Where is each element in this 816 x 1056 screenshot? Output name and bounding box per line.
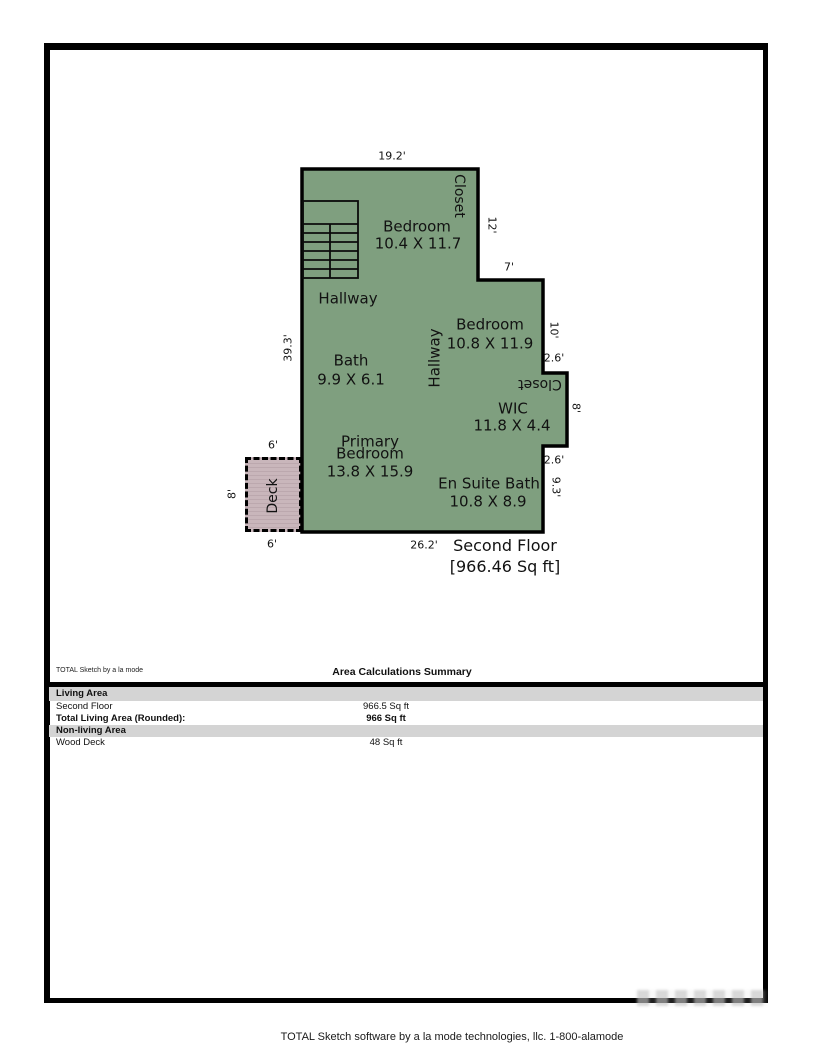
table-row-second-floor: Second Floor 966.5 Sq ft: [49, 701, 763, 713]
row-value: 48 Sq ft: [336, 737, 436, 749]
watermark-smudge: [637, 990, 767, 1006]
page-frame: [44, 43, 768, 1003]
dim-label-right-8: 8': [571, 403, 582, 413]
floor-name-label: Second Floor: [453, 538, 557, 554]
room-label-deck: Deck: [266, 478, 280, 513]
room-label-primary-line2: Bedroom: [336, 447, 404, 462]
row-value: 966.5 Sq ft: [336, 701, 436, 713]
summary-title: Area Calculations Summary: [332, 666, 471, 679]
room-dims-ensuite: 10.8 X 8.9: [449, 495, 526, 510]
footer-text: TOTAL Sketch software by a la mode techn…: [281, 1031, 624, 1043]
dim-label-step-2-6-upper: 2.6': [544, 353, 565, 364]
room-dims-wic: 11.8 X 4.4: [473, 419, 550, 434]
row-label: Wood Deck: [56, 737, 105, 748]
dim-label-step-7: 7': [504, 262, 514, 273]
room-dims-primary: 13.8 X 15.9: [327, 465, 414, 480]
room-dims-bedroom-1: 10.4 X 11.7: [375, 237, 462, 252]
dim-label-right-10: 10': [549, 321, 560, 338]
room-label-wic: WIC: [498, 402, 528, 417]
dim-label-left-39-3: 39.3': [283, 334, 294, 362]
floor-area-label: [966.46 Sq ft]: [450, 559, 561, 575]
room-label-ensuite: En Suite Bath: [438, 477, 540, 492]
room-label-bedroom-1: Bedroom: [383, 220, 451, 235]
room-label-bath: Bath: [334, 354, 369, 369]
room-dims-bath: 9.9 X 6.1: [317, 373, 385, 388]
dim-label-deck-left-8: 8': [227, 489, 238, 499]
dim-label-top-width: 19.2': [378, 151, 406, 162]
dim-label-right-12: 12': [487, 216, 498, 233]
row-label: Total Living Area (Rounded):: [56, 713, 185, 724]
table-row-total-living-area: Total Living Area (Rounded): 966 Sq ft: [49, 713, 763, 725]
room-dims-bedroom-2: 10.8 X 11.9: [447, 337, 534, 352]
section-header-living-area: Living Area: [49, 687, 763, 701]
room-label-closet-top: Closet: [452, 174, 466, 218]
dim-label-bottom-26-2: 26.2': [410, 540, 438, 551]
sketch-brand-label: TOTAL Sketch by a la mode: [56, 665, 143, 677]
room-label-hallway-vertical: Hallway: [428, 328, 443, 387]
dim-label-deck-top-6: 6': [268, 440, 278, 451]
table-row-wood-deck: Wood Deck 48 Sq ft: [49, 737, 763, 749]
row-label: Second Floor: [56, 701, 113, 712]
room-label-closet-mid: Closet: [518, 377, 562, 391]
dim-label-deck-bottom-6: 6': [267, 539, 277, 550]
row-value: 966 Sq ft: [336, 713, 436, 725]
section-header-non-living-area: Non-living Area: [49, 725, 763, 737]
dim-label-step-2-6-lower: 2.6': [544, 455, 565, 466]
room-label-hallway-upper: Hallway: [318, 292, 377, 307]
room-label-bedroom-2: Bedroom: [456, 318, 524, 333]
dim-label-right-9-3: 9.3': [551, 477, 562, 498]
